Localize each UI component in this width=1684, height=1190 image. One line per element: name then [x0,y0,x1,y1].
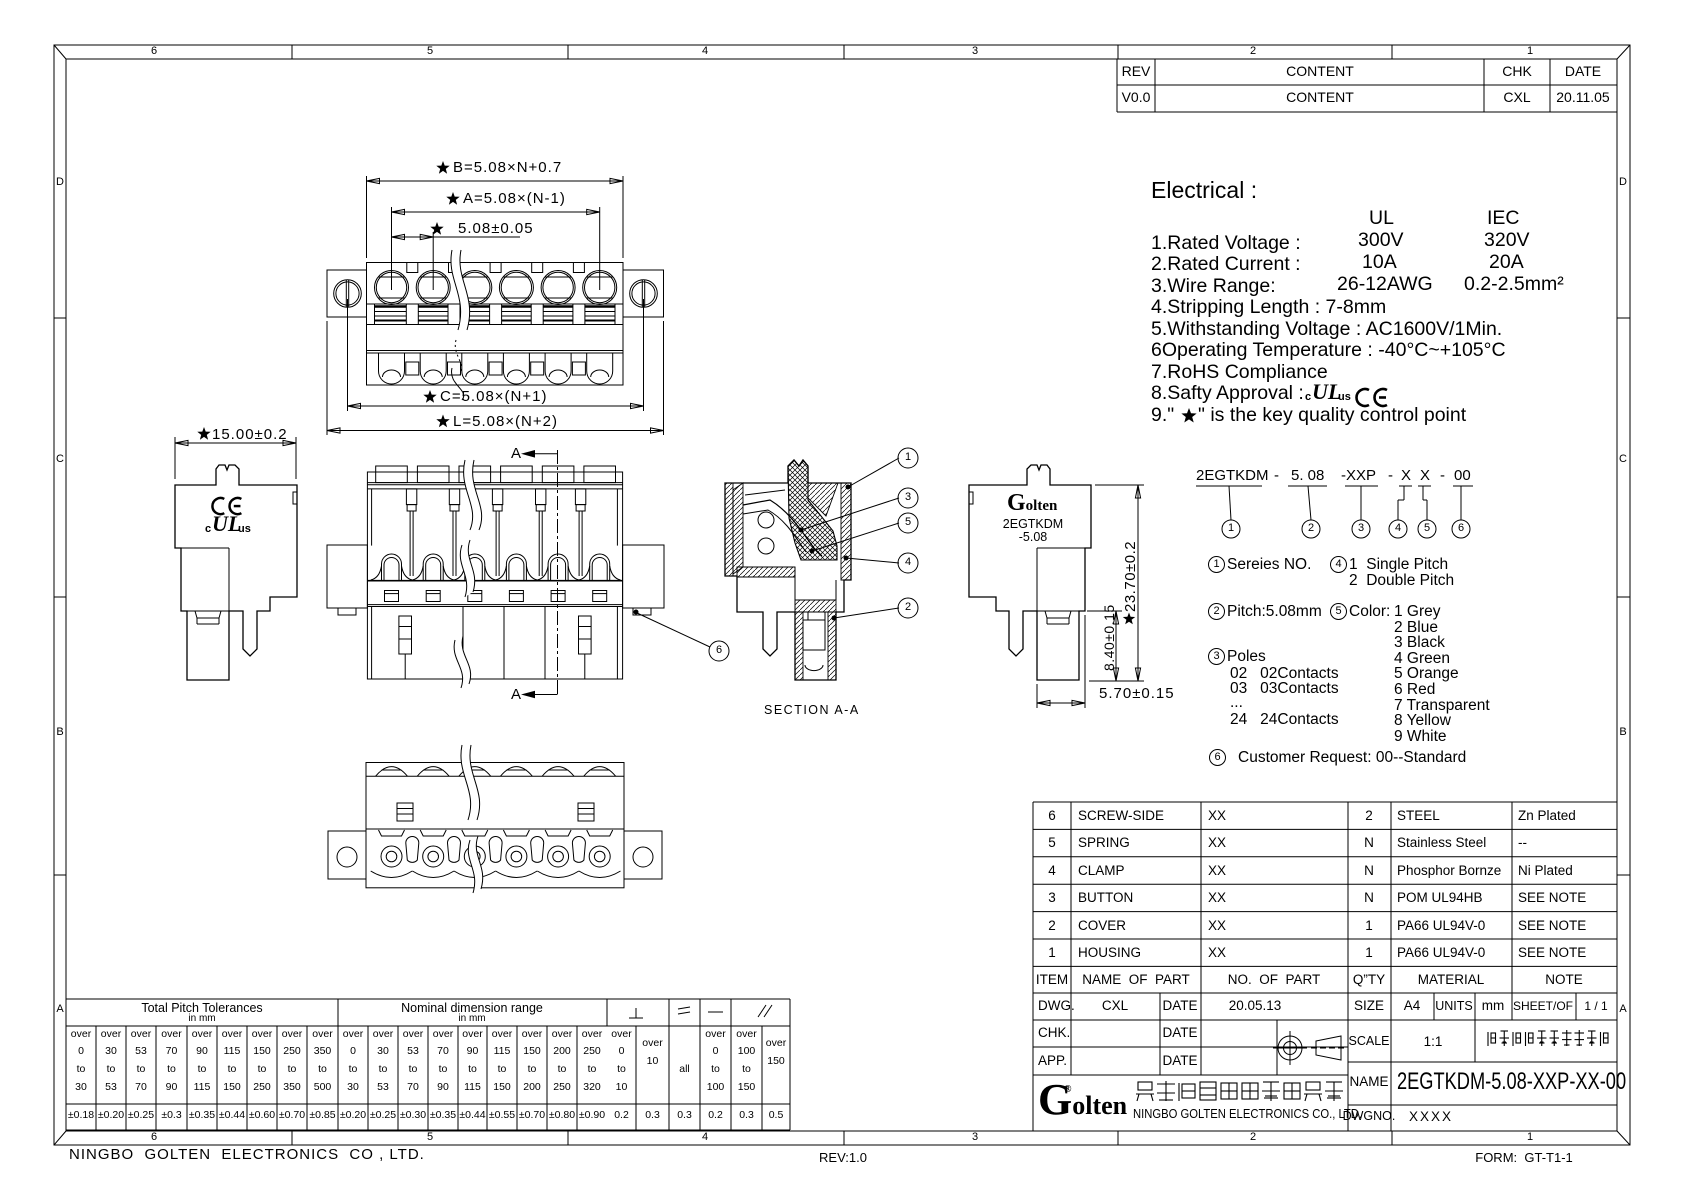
svg-text:us: us [1338,391,1351,403]
svg-text:c: c [1305,391,1311,403]
svg-text:us: us [238,523,251,535]
svg-text:c: c [205,523,211,535]
svg-text:UL: UL [212,511,241,536]
